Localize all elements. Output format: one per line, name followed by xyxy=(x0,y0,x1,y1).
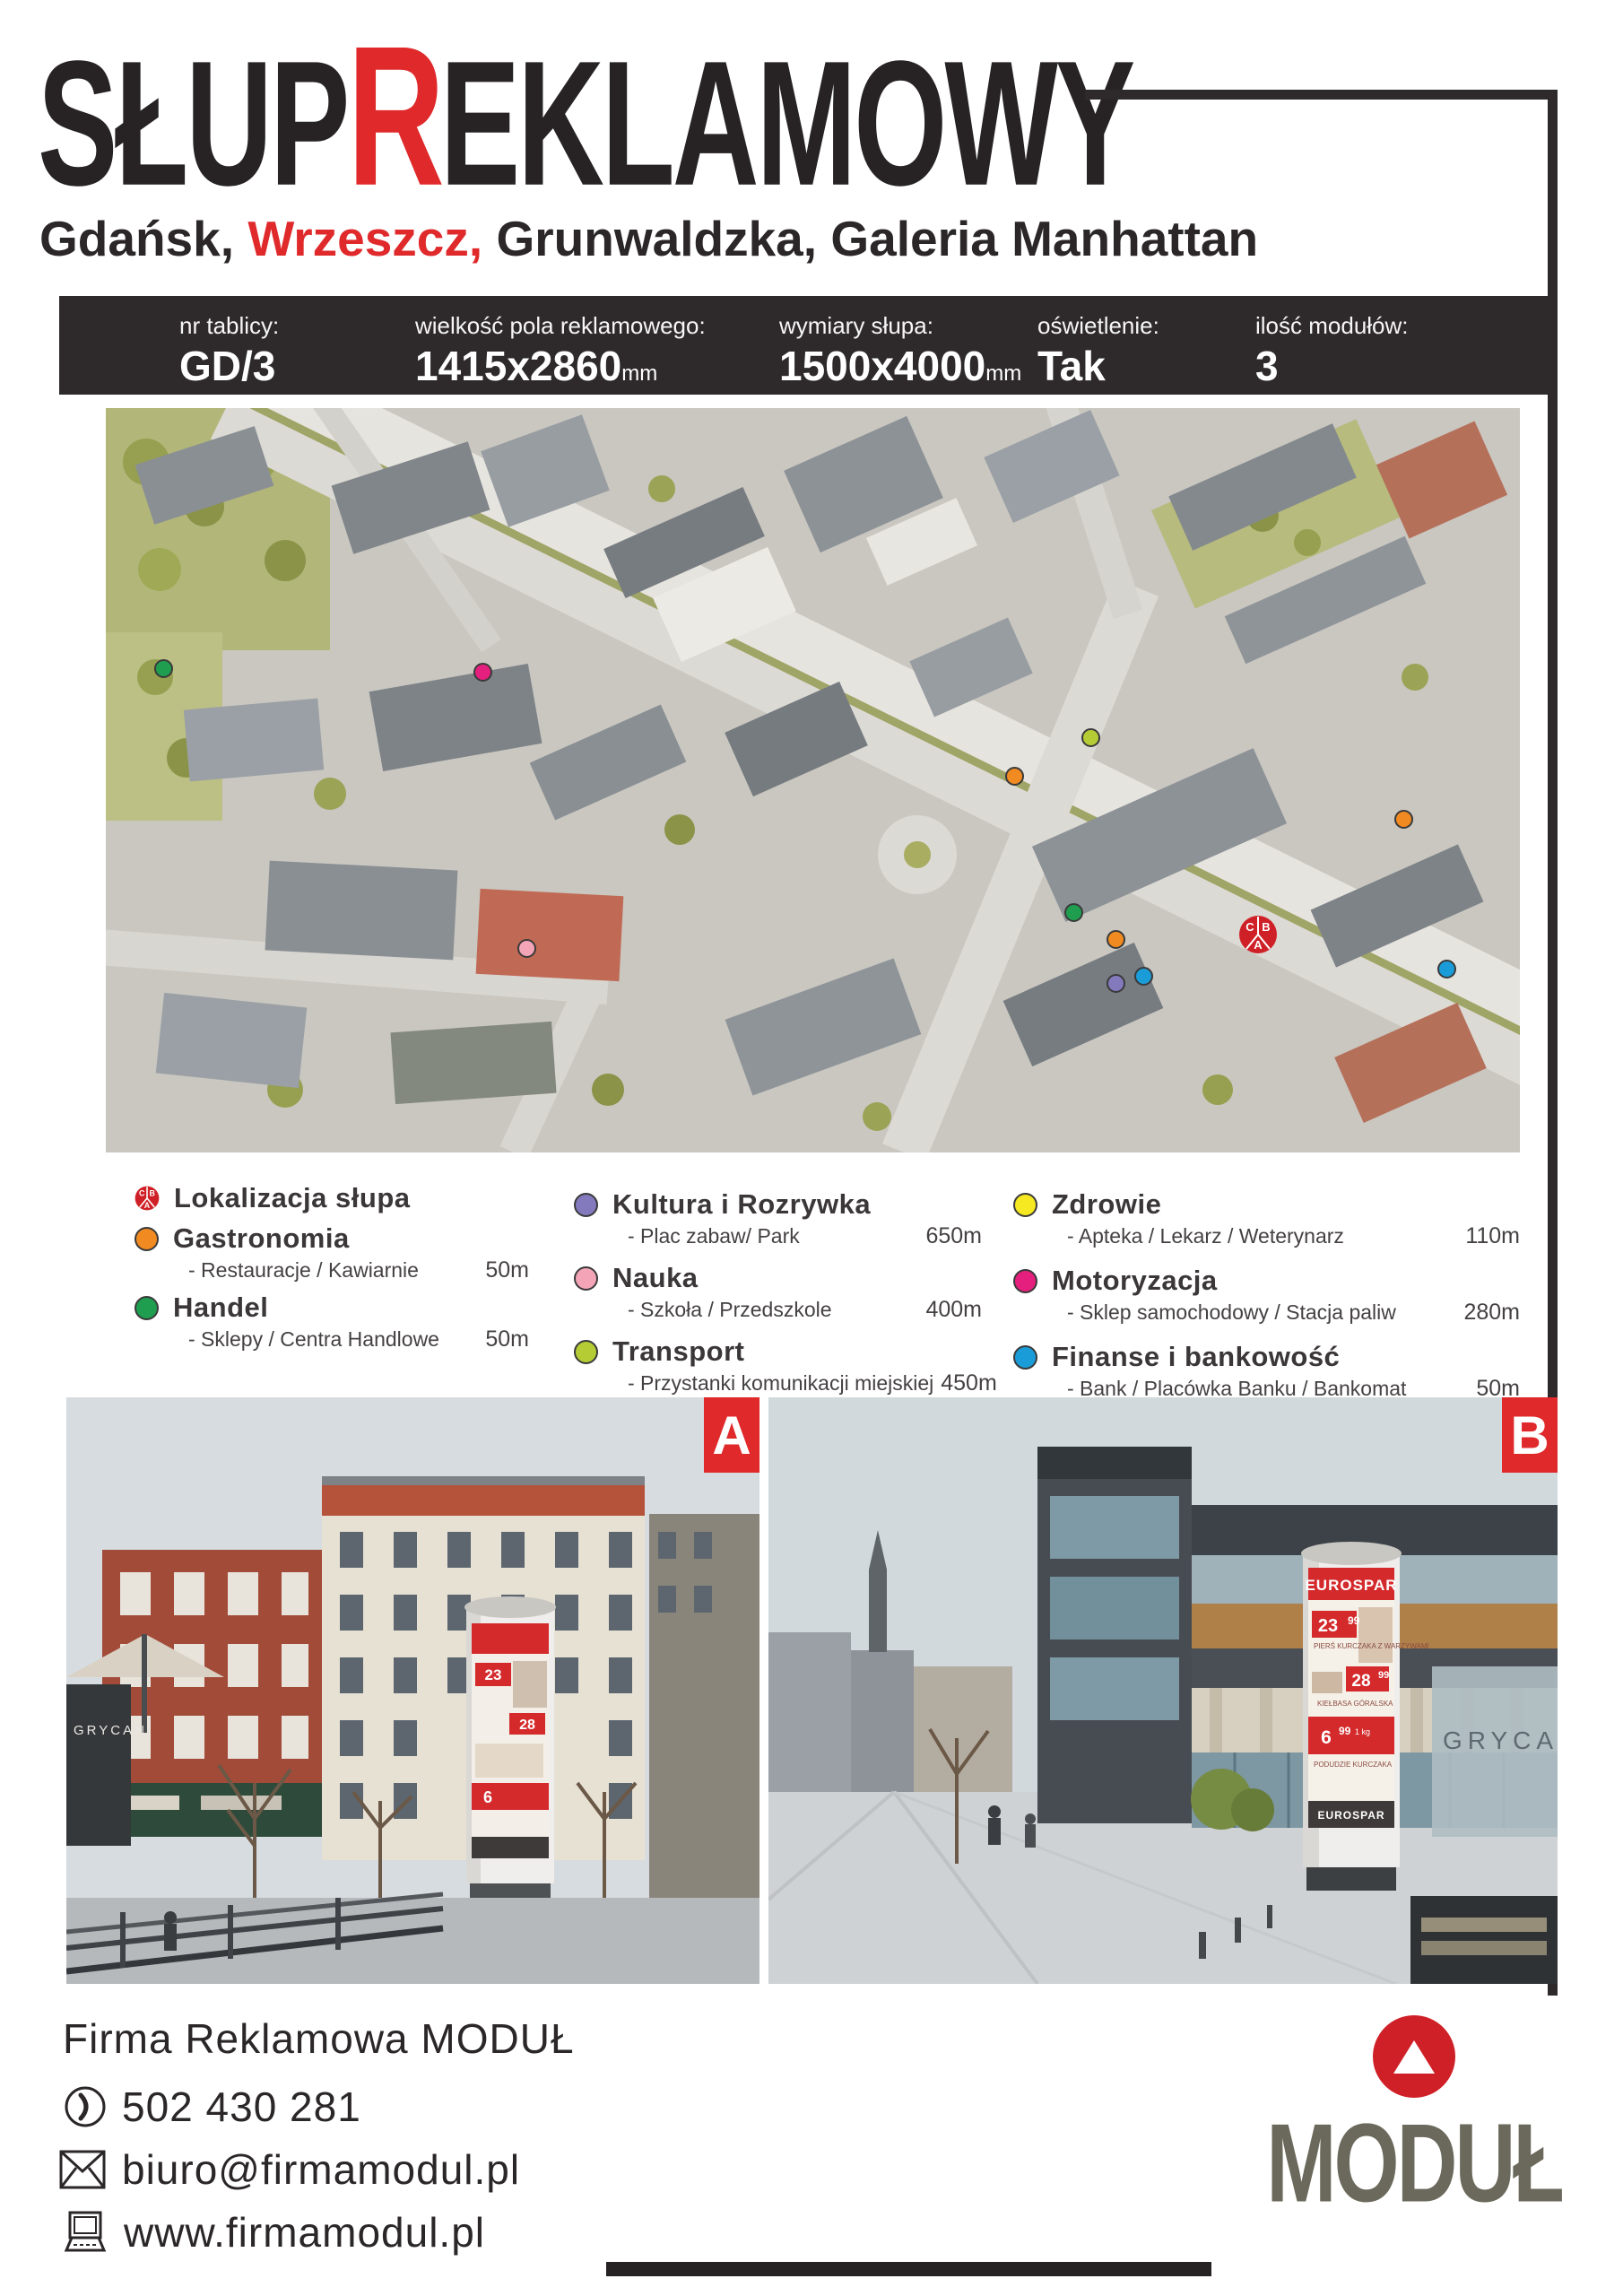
legend-title: Transport xyxy=(612,1335,744,1368)
spec-field-lighting: oświetlenie: Tak xyxy=(1037,312,1159,390)
legend-distance: 450m xyxy=(941,1370,997,1396)
photo-a-art: GRYCAN 23 28 6 xyxy=(66,1397,759,1984)
svg-text:6: 6 xyxy=(1321,1727,1332,1748)
legend-entry-finanse: Finanse i bankowość - Bank / Placówka Ba… xyxy=(1013,1341,1520,1402)
flyer-page: SŁUPREKLAMOWY Gdańsk, Wrzeszcz, Grunwald… xyxy=(0,0,1623,2296)
svg-text:A: A xyxy=(144,1201,151,1210)
footer-divider-line xyxy=(606,2262,1211,2276)
map-dot-gastronomia xyxy=(1005,767,1024,786)
photo-a-advertising-column: 23 28 6 xyxy=(464,1596,556,1905)
legend-entry-motoryzacja: Motoryzacja - Sklep samochodowy / Stacja… xyxy=(1013,1265,1520,1326)
category-dot-icon xyxy=(135,1227,159,1251)
category-dot-icon xyxy=(574,1266,598,1291)
map-dot-gastronomia xyxy=(1394,810,1413,829)
map-dot-finanse-i-bankowo- xyxy=(1437,960,1456,978)
svg-text:A: A xyxy=(1254,938,1263,952)
spec-field-ad-area: wielkość pola reklamowego: 1415x2860mm xyxy=(415,312,706,390)
legend-sub: - Restauracje / Kawiarnie xyxy=(188,1258,478,1283)
legend-title: Nauka xyxy=(612,1262,699,1294)
svg-text:B: B xyxy=(150,1188,156,1197)
legend-column-1: C B A Lokalizacja słupa Gastronomia - Re… xyxy=(135,1182,529,1352)
title-pre: SŁUP xyxy=(38,25,347,223)
spec-value: 1415x2860mm xyxy=(415,342,706,390)
subtitle-pre: Gdańsk, xyxy=(39,211,247,266)
svg-text:6: 6 xyxy=(483,1788,492,1806)
category-dot-icon xyxy=(1013,1345,1037,1370)
spec-field-column-size: wymiary słupa: 1500x4000mm xyxy=(779,312,1021,390)
legend-distance: 280m xyxy=(1463,1300,1520,1326)
svg-text:28: 28 xyxy=(1351,1672,1370,1691)
contact-website-row: www.firmamodul.pl xyxy=(61,2208,485,2257)
column-location-marker-icon: C B A xyxy=(1238,915,1278,954)
legend-distance: 50m xyxy=(485,1326,529,1352)
svg-text:1 kg: 1 kg xyxy=(1355,1727,1370,1736)
map-dot-handel xyxy=(154,659,173,678)
legend-entry-gastronomia: Gastronomia - Restauracje / Kawiarnie 50… xyxy=(135,1222,529,1283)
photo-b-grycan-glass: GRYCAN xyxy=(1432,1666,1558,1837)
svg-text:28: 28 xyxy=(519,1718,535,1733)
category-dot-icon xyxy=(574,1340,598,1364)
email-address[interactable]: biuro@firmamodul.pl xyxy=(122,2145,520,2194)
svg-text:23: 23 xyxy=(485,1666,502,1683)
legend-title: Lokalizacja słupa xyxy=(174,1182,411,1214)
category-dot-icon xyxy=(135,1296,159,1320)
legend-title: Motoryzacja xyxy=(1052,1265,1218,1297)
svg-text:PODUDZIE KURCZAKA: PODUDZIE KURCZAKA xyxy=(1314,1761,1393,1769)
map-dot-motoryzacja xyxy=(473,663,492,682)
aerial-map: C B A xyxy=(106,408,1520,1152)
spec-bar: nr tablicy: GD/3 wielkość pola reklamowe… xyxy=(59,296,1558,395)
svg-text:23: 23 xyxy=(1318,1616,1338,1636)
page-title: SŁUPREKLAMOWY xyxy=(38,36,1133,213)
category-dot-icon xyxy=(1013,1193,1037,1217)
map-dot-kultura-i-rozrywka xyxy=(1107,974,1125,993)
map-dots-layer xyxy=(106,408,1520,1152)
legend-entry-location: C B A Lokalizacja słupa xyxy=(135,1182,529,1214)
category-dot-icon xyxy=(574,1193,598,1217)
svg-text:EUROSPAR: EUROSPAR xyxy=(1317,1809,1384,1822)
contact-phone-row: 502 430 281 xyxy=(63,2083,361,2131)
spec-label: oświetlenie: xyxy=(1037,312,1159,340)
legend-sub: - Plac zabaw/ Park xyxy=(628,1224,918,1248)
contact-email-row: biuro@firmamodul.pl xyxy=(57,2145,520,2194)
spec-field-modules: ilość modułów: 3 xyxy=(1255,312,1409,390)
website-url[interactable]: www.firmamodul.pl xyxy=(124,2208,485,2257)
map-dot-nauka xyxy=(517,939,536,958)
legend-distance: 650m xyxy=(925,1223,982,1249)
legend-column-3: Zdrowie - Apteka / Lekarz / Weterynarz 1… xyxy=(1013,1188,1520,1402)
photo-location-a: GRYCAN 23 28 6 xyxy=(66,1397,759,1984)
column-location-marker: C B A xyxy=(1238,915,1278,954)
title-accent-letter: R xyxy=(347,4,439,227)
modul-logo-text: MODUŁ xyxy=(1266,2108,1562,2219)
legend-title: Finanse i bankowość xyxy=(1052,1341,1340,1373)
spec-label: nr tablicy: xyxy=(179,312,279,340)
legend-sub: - Przystanki komunikacji miejskiej xyxy=(628,1371,933,1396)
spec-value: Tak xyxy=(1037,342,1159,390)
svg-text:B: B xyxy=(1262,920,1270,934)
company-name: Firma Reklamowa MODUŁ xyxy=(63,2014,575,2063)
svg-text:99: 99 xyxy=(1348,1614,1360,1627)
photo-location-b: GRYCAN EUROSPAR 23 99 PIERŚ KURCZAKA Z W… xyxy=(768,1397,1558,1984)
svg-text:GRYCAN: GRYCAN xyxy=(1443,1726,1558,1754)
svg-text:GRYCAN: GRYCAN xyxy=(74,1723,147,1738)
frame-line-top xyxy=(1085,90,1558,100)
legend-sub: - Apteka / Lekarz / Weterynarz xyxy=(1067,1224,1458,1248)
phone-number[interactable]: 502 430 281 xyxy=(122,2083,361,2131)
subtitle-post: Grunwaldzka, Galeria Manhattan xyxy=(482,211,1258,266)
spec-value: 3 xyxy=(1255,342,1409,390)
legend-sub: - Szkoła / Przedszkole xyxy=(628,1298,918,1322)
spec-value: GD/3 xyxy=(179,342,279,390)
map-dot-handel xyxy=(1064,903,1083,922)
map-dot-gastronomia xyxy=(1107,930,1125,949)
svg-text:99: 99 xyxy=(1378,1670,1389,1681)
svg-text:PIERŚ KURCZAKA Z WARZYWAMI: PIERŚ KURCZAKA Z WARZYWAMI xyxy=(1314,1642,1429,1650)
photo-b-badge: B xyxy=(1502,1397,1558,1473)
spec-label: wielkość pola reklamowego: xyxy=(415,312,706,340)
legend-distance: 110m xyxy=(1465,1223,1520,1249)
map-dot-finanse-i-bankowo- xyxy=(1134,967,1153,986)
legend-title: Kultura i Rozrywka xyxy=(612,1188,871,1221)
legend-title: Gastronomia xyxy=(173,1222,350,1255)
legend-title: Handel xyxy=(173,1291,268,1324)
spec-value: 1500x4000mm xyxy=(779,342,1021,390)
legend-title: Zdrowie xyxy=(1052,1188,1161,1221)
legend-entry-handel: Handel - Sklepy / Centra Handlowe 50m xyxy=(135,1291,529,1352)
legend-distance: 50m xyxy=(485,1257,529,1283)
legend-entry-nauka: Nauka - Szkoła / Przedszkole 400m xyxy=(574,1262,982,1323)
photo-a-foreground xyxy=(66,1894,759,1984)
legend-entry-kultura: Kultura i Rozrywka - Plac zabaw/ Park 65… xyxy=(574,1188,982,1249)
svg-text:KIEŁBASA GÓRALSKA: KIEŁBASA GÓRALSKA xyxy=(1317,1700,1393,1708)
map-dot-transport xyxy=(1081,728,1100,747)
computer-icon xyxy=(61,2209,109,2256)
spec-field-board-number: nr tablicy: GD/3 xyxy=(179,312,279,390)
legend-entry-transport: Transport - Przystanki komunikacji miejs… xyxy=(574,1335,982,1396)
photo-a-badge: A xyxy=(704,1397,759,1473)
legend-distance: 400m xyxy=(925,1297,982,1323)
legend-sub: - Sklep samochodowy / Stacja paliw xyxy=(1067,1300,1456,1325)
modul-logo-triangle-icon xyxy=(1393,2040,1435,2074)
svg-text:C: C xyxy=(139,1188,145,1197)
phone-icon xyxy=(63,2084,108,2129)
location-marker-icon: C B A xyxy=(135,1186,160,1211)
spec-label: ilość modułów: xyxy=(1255,312,1409,340)
legend-sub: - Sklepy / Centra Handlowe xyxy=(188,1327,478,1352)
title-post: EKLAMOWY xyxy=(440,25,1133,223)
category-dot-icon xyxy=(1013,1269,1037,1293)
photo-b-art: GRYCAN EUROSPAR 23 99 PIERŚ KURCZAKA Z W… xyxy=(768,1397,1558,1984)
email-icon xyxy=(57,2146,108,2193)
svg-text:EUROSPAR: EUROSPAR xyxy=(1305,1577,1397,1594)
location-subtitle: Gdańsk, Wrzeszcz, Grunwaldzka, Galeria M… xyxy=(39,210,1258,267)
legend-column-2: Kultura i Rozrywka - Plac zabaw/ Park 65… xyxy=(574,1188,982,1396)
svg-text:99: 99 xyxy=(1339,1725,1351,1737)
legend-entry-zdrowie: Zdrowie - Apteka / Lekarz / Weterynarz 1… xyxy=(1013,1188,1520,1249)
spec-label: wymiary słupa: xyxy=(779,312,1021,340)
subtitle-accent: Wrzeszcz, xyxy=(247,211,482,266)
svg-text:C: C xyxy=(1245,920,1254,934)
